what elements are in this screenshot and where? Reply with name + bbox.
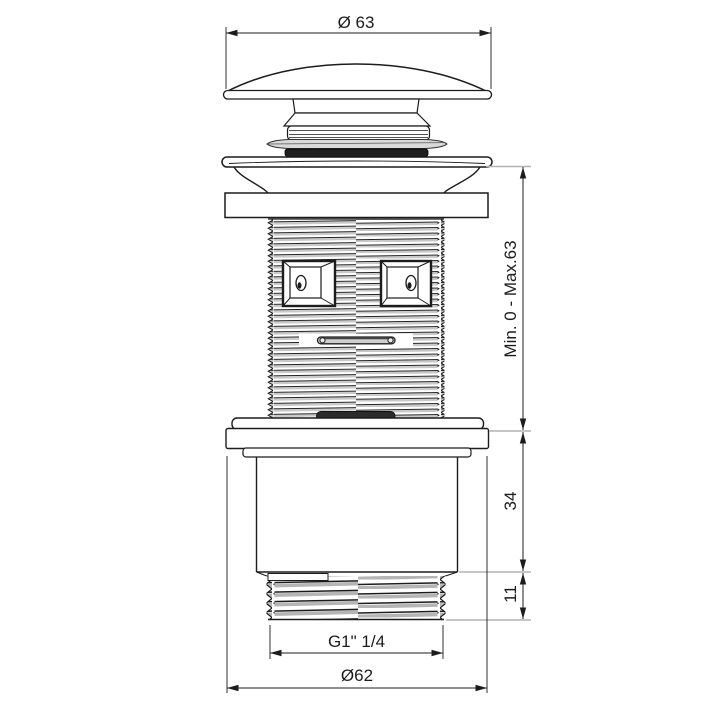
dim-bottom-diameter: Ø62 [227, 456, 487, 693]
drain-valve-drawing: Ø 63 Min. 0 - Max.63 34 11 G1" 1/4 Ø62 [0, 0, 720, 720]
dim-label-thread-spec: G1" 1/4 [328, 632, 385, 651]
dim-adjust-range: Min. 0 - Max.63 [486, 167, 531, 432]
dim-thread-spec: G1" 1/4 [270, 625, 443, 659]
cap-stem [284, 99, 430, 140]
flange-plate [225, 193, 488, 218]
dim-label-body-height: 34 [501, 492, 520, 511]
dim-label-adjust-range: Min. 0 - Max.63 [501, 240, 520, 357]
seal-ring [285, 149, 428, 157]
pin-window-left [283, 261, 335, 306]
lower-thread [267, 574, 446, 621]
pin-window-right [381, 261, 431, 306]
dim-thread-length: 11 [446, 573, 531, 620]
lock-collar [226, 418, 489, 457]
push-cap [224, 64, 492, 99]
upper-thread [267, 219, 445, 421]
body-cylinder [257, 457, 458, 577]
dim-label-top-diameter: Ø 63 [338, 13, 375, 32]
technical-drawing-page: Ø 63 Min. 0 - Max.63 34 11 G1" 1/4 Ø62 [0, 0, 720, 720]
dim-label-thread-length: 11 [501, 585, 520, 603]
dim-label-bottom-diameter: Ø62 [341, 666, 373, 685]
seal-gasket [267, 140, 447, 149]
top-flange [222, 157, 492, 193]
adjustment-slot [299, 334, 413, 347]
